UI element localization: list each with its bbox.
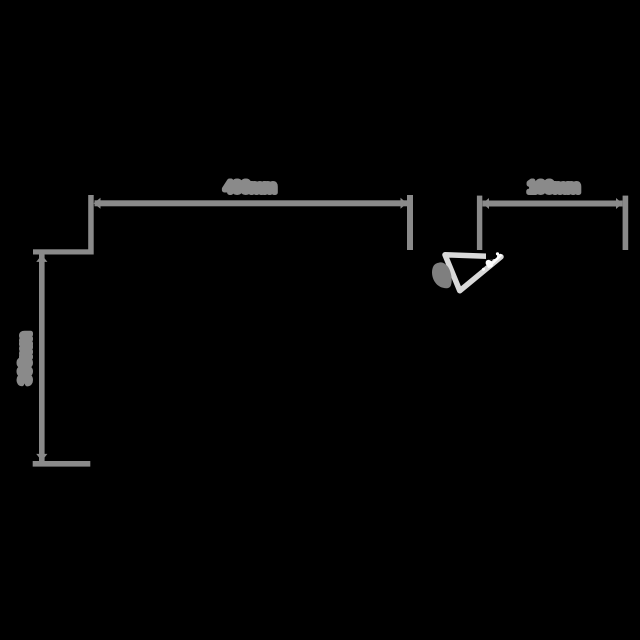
svg-text:400mm: 400mm [224, 178, 276, 196]
svg-text:100mm: 100mm [528, 178, 580, 196]
svg-text:300mm: 300mm [16, 333, 34, 385]
